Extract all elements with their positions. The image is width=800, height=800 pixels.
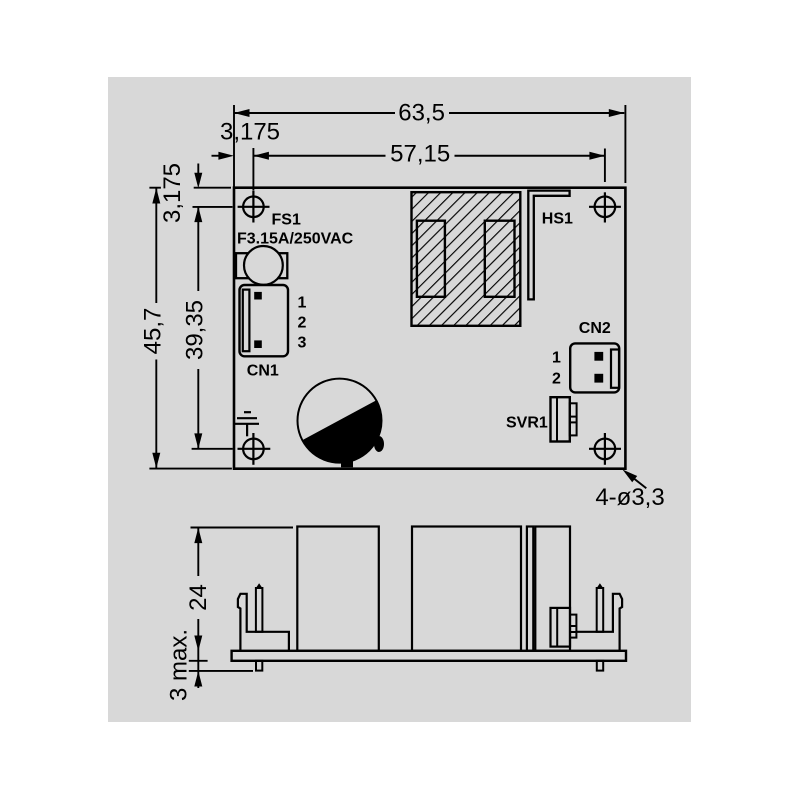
svg-text:4-ø3,3: 4-ø3,3 [595, 484, 664, 511]
svg-text:1: 1 [552, 350, 561, 367]
svg-text:24: 24 [185, 584, 212, 611]
svg-text:HS1: HS1 [542, 211, 573, 228]
svg-text:2: 2 [552, 371, 561, 388]
svg-text:SVR1: SVR1 [506, 415, 548, 432]
svg-text:FS1: FS1 [272, 212, 301, 229]
svg-text:CN2: CN2 [579, 320, 611, 337]
svg-text:63,5: 63,5 [398, 100, 445, 127]
svg-text:3 max.: 3 max. [166, 629, 193, 701]
svg-text:1: 1 [298, 295, 307, 312]
svg-text:F3.15A/250VAC: F3.15A/250VAC [237, 231, 354, 248]
svg-text:39,35: 39,35 [181, 300, 208, 360]
svg-text:45,7: 45,7 [139, 308, 166, 355]
svg-text:57,15: 57,15 [390, 140, 450, 167]
svg-text:CN1: CN1 [247, 363, 279, 380]
svg-text:3: 3 [298, 335, 307, 352]
svg-text:3,175: 3,175 [220, 119, 280, 146]
svg-text:2: 2 [298, 315, 307, 332]
svg-text:3,175: 3,175 [159, 163, 186, 223]
